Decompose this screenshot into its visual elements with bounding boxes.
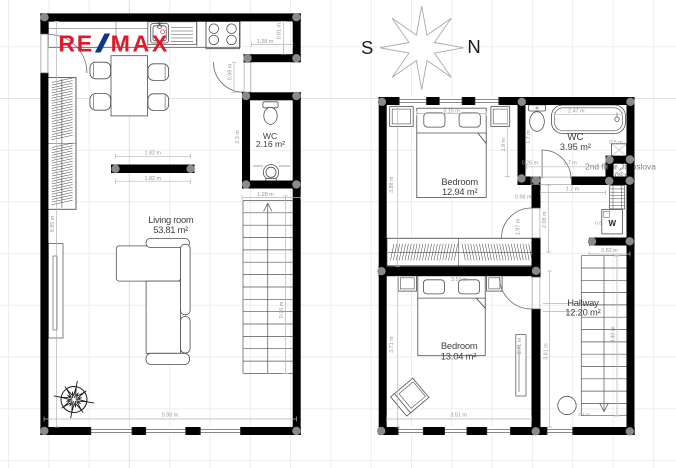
svg-text:N: N — [467, 36, 480, 57]
svg-text:53.81 m²: 53.81 m² — [153, 224, 188, 235]
svg-text:2.16 m²: 2.16 m² — [256, 139, 285, 149]
svg-text:3.51 m: 3.51 m — [451, 277, 468, 283]
svg-text:1.82 m: 1.82 m — [144, 176, 161, 182]
svg-text:0.8: 0.8 — [595, 221, 602, 226]
svg-text:0.98 m: 0.98 m — [227, 63, 233, 80]
svg-text:1.9 m: 1.9 m — [501, 137, 507, 151]
svg-text:2.08 m: 2.08 m — [542, 211, 548, 228]
svg-text:3.71 m: 3.71 m — [389, 336, 395, 353]
svg-text:1.28 m: 1.28 m — [257, 192, 274, 198]
svg-text:1.82 m: 1.82 m — [144, 151, 161, 157]
svg-text:2.3 m: 2.3 m — [235, 130, 241, 144]
svg-text:9.85 m: 9.85 m — [50, 215, 56, 232]
svg-text:2.47 m: 2.47 m — [568, 108, 585, 114]
svg-text:3.51 m: 3.51 m — [450, 412, 467, 418]
svg-text:MAX: MAX — [111, 30, 170, 56]
svg-text:3.15 m: 3.15 m — [443, 108, 460, 114]
svg-text:1.7 m: 1.7 m — [526, 130, 532, 144]
svg-text:1.7 m: 1.7 m — [566, 186, 580, 192]
svg-text:1.28 m: 1.28 m — [257, 39, 274, 45]
svg-text:5.93 m: 5.93 m — [162, 412, 179, 418]
svg-text:3.88 m: 3.88 m — [389, 176, 395, 193]
svg-text:4.40 m: 4.40 m — [611, 326, 617, 343]
svg-text:S: S — [361, 37, 373, 58]
svg-text:13.04 m²: 13.04 m² — [441, 350, 476, 361]
svg-text:W: W — [609, 219, 617, 228]
svg-text:3.81 m: 3.81 m — [544, 343, 550, 360]
svg-text:RE: RE — [58, 30, 93, 56]
svg-text:3.95 m²: 3.95 m² — [560, 142, 591, 152]
svg-text:0.81 m: 0.81 m — [277, 22, 283, 39]
svg-text:0.26 m: 0.26 m — [522, 161, 539, 167]
svg-text:2.71 m: 2.71 m — [517, 337, 523, 354]
svg-text:Bedroom: Bedroom — [441, 340, 478, 351]
svg-text:12.20 m²: 12.20 m² — [565, 307, 600, 318]
svg-text:1.97 m: 1.97 m — [516, 218, 522, 235]
svg-text:0.76 m: 0.76 m — [279, 301, 285, 318]
svg-text:1.7 m: 1.7 m — [563, 161, 577, 167]
svg-text:0.5 m: 0.5 m — [609, 140, 623, 146]
svg-text:12.94 m²: 12.94 m² — [442, 186, 477, 197]
svg-text:0.98 m: 0.98 m — [515, 194, 532, 200]
svg-text:2.4 m: 2.4 m — [578, 412, 590, 417]
svg-text:0.82 m: 0.82 m — [601, 248, 618, 254]
